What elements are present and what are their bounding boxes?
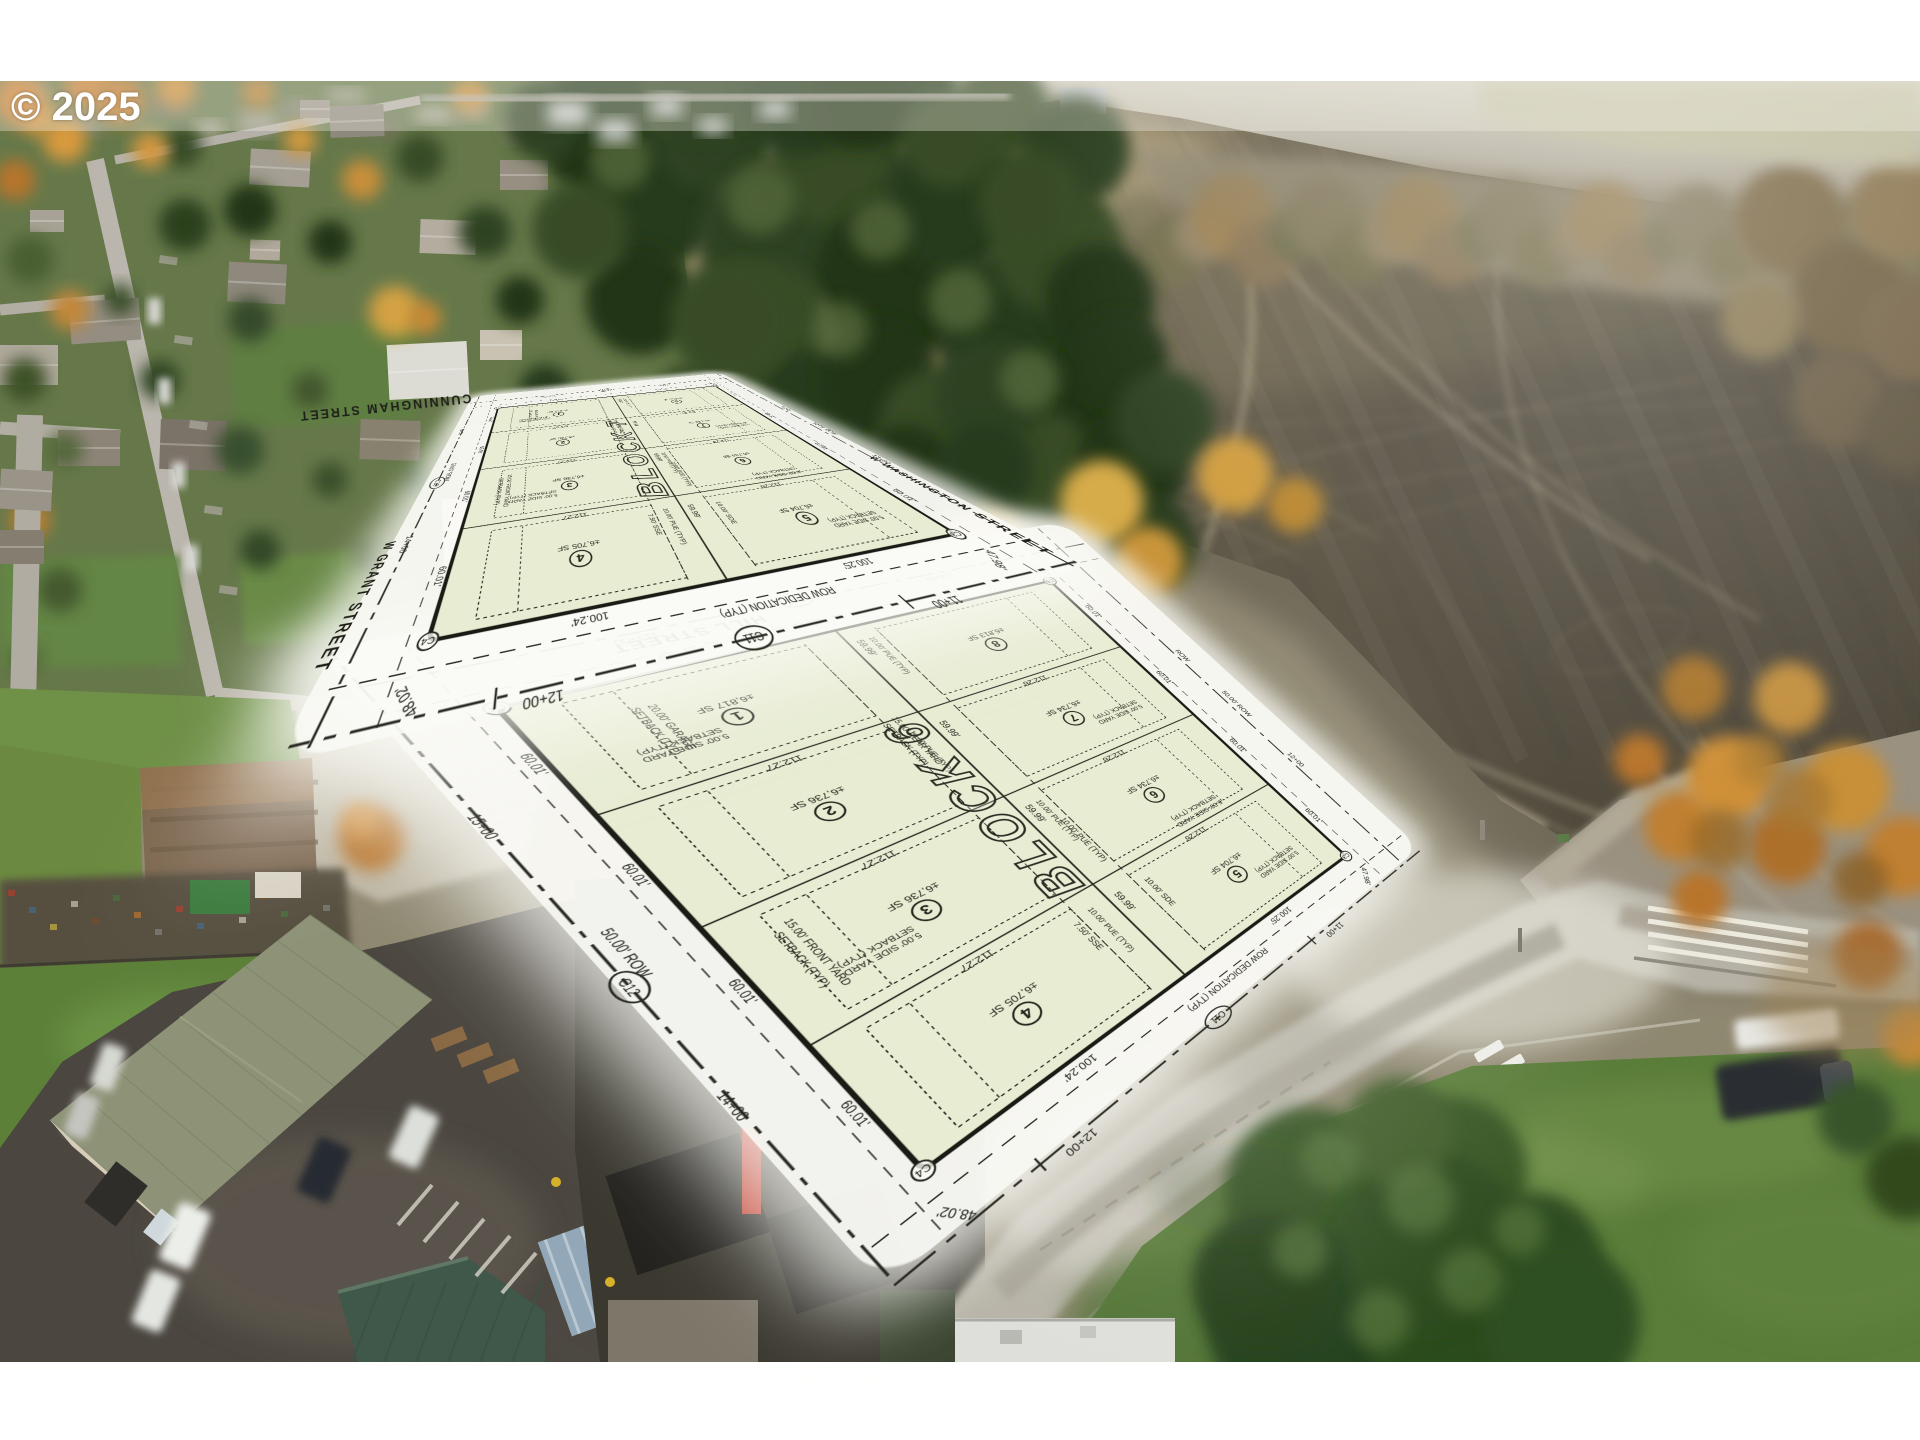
svg-text:4: 4 xyxy=(576,551,586,564)
svg-text:1: 1 xyxy=(556,412,560,415)
svg-text:3: 3 xyxy=(566,481,573,488)
svg-text:2: 2 xyxy=(560,440,565,444)
svg-text:SETBACK (TYP): SETBACK (TYP) xyxy=(528,410,533,422)
svg-text:20.00' GARAGE: 20.00' GARAGE xyxy=(534,410,539,421)
